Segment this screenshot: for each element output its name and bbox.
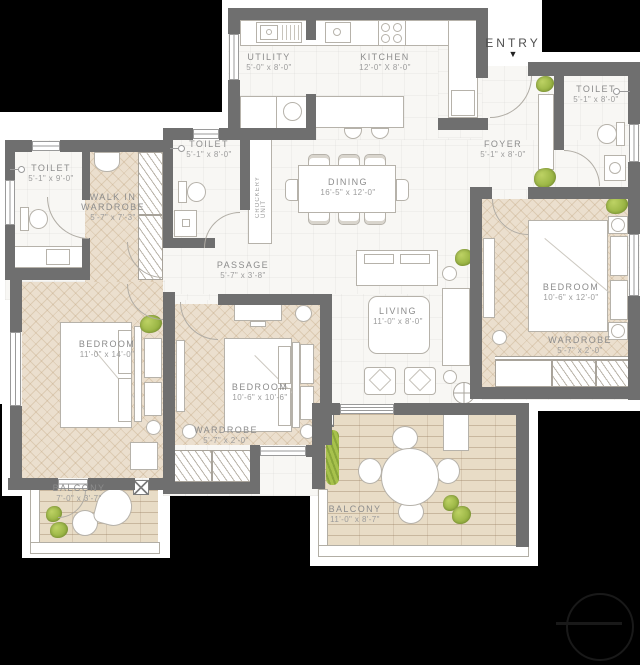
watermark-logo	[566, 593, 634, 661]
living-label: LIVING 11'-0" x 8'-0"	[373, 306, 423, 326]
wc-tank	[616, 122, 625, 146]
bedroom-right-label: BEDROOM 10'-6" x 12'-0"	[543, 282, 599, 302]
wardrobe-middle-label: WARDROBE 5'-7" x 2'-0"	[194, 425, 258, 445]
balcony-railing	[318, 489, 328, 547]
wall	[306, 20, 316, 40]
burner	[393, 23, 402, 32]
wall-light-icon	[10, 169, 18, 170]
side-table	[442, 266, 457, 281]
bedroom-left-label: BEDROOM 11'-0" x 14'-0"	[79, 339, 135, 359]
wall	[470, 187, 482, 399]
entry-label: ENTRY ▼	[485, 36, 540, 59]
study-desk	[234, 304, 282, 321]
wall	[312, 403, 340, 415]
wardrobe-hatch	[212, 450, 252, 482]
sink-drain	[333, 28, 341, 36]
floor-plan: ENTRY ▼ UTILITY 5'-0" x 8'-0" KITCHEN 12…	[0, 0, 640, 665]
desk-drawer	[250, 321, 266, 327]
ac-unit	[133, 480, 149, 495]
wall	[228, 8, 240, 34]
wash-basin	[46, 249, 70, 265]
wall-light-icon	[620, 91, 630, 92]
wall	[554, 76, 564, 150]
bedside-table	[144, 382, 162, 416]
wall	[240, 128, 250, 210]
bed	[528, 220, 608, 332]
wall	[10, 280, 22, 332]
wall	[163, 482, 260, 494]
wall-light-icon	[178, 145, 185, 152]
patio-table	[381, 448, 439, 506]
wall	[5, 268, 90, 280]
fridge	[451, 90, 475, 116]
plan-background	[538, 399, 640, 411]
wall-light-icon	[18, 166, 25, 173]
side-table	[443, 370, 457, 384]
entry-text: ENTRY	[485, 36, 540, 50]
wall	[10, 406, 22, 478]
dining-chair	[285, 179, 298, 201]
wall-light-icon	[170, 148, 178, 149]
wall	[628, 296, 640, 400]
bedside-table	[144, 338, 162, 378]
wall	[228, 8, 482, 20]
mirror-panel	[176, 340, 185, 412]
bedside-lamp	[611, 324, 625, 338]
sink-drain	[266, 29, 272, 35]
toilet-left-label: TOILET 5'-1" x 9'-0"	[28, 163, 74, 183]
wall	[82, 238, 90, 268]
dresser	[130, 442, 158, 470]
wall	[8, 478, 58, 490]
wc-bowl	[597, 124, 617, 144]
window	[193, 129, 219, 139]
sliding-door	[340, 404, 394, 414]
wc-tank	[20, 207, 29, 231]
utility-label: UTILITY 5'-0" x 8'-0"	[246, 52, 292, 72]
wall	[516, 411, 529, 547]
balcony-left-label: BALCONY 7'-0" x 3'-7"	[53, 483, 106, 503]
crockery-unit-label: CROCKERY UNIT	[255, 158, 267, 218]
kitchen-label: KITCHEN 12'-0" X 8'-0"	[359, 52, 411, 72]
wall	[5, 152, 15, 180]
dining-chair	[364, 212, 386, 225]
kitchen-island	[312, 96, 404, 128]
pillow	[118, 378, 132, 422]
pillow	[610, 236, 628, 276]
floor-lamp	[492, 330, 507, 345]
wardrobe-right-label: WARDROBE 5'-7" x 2'-0"	[548, 335, 612, 355]
bedroom-middle-label: BEDROOM 10'-6" x 10'-6"	[232, 382, 288, 402]
headboard	[292, 342, 300, 428]
sofa-cushion	[400, 254, 430, 264]
window	[10, 332, 21, 406]
dining-chair	[338, 212, 360, 225]
watermark-line	[556, 622, 622, 625]
wall	[163, 140, 173, 238]
wall	[482, 387, 640, 399]
walk-in-wardrobe-label: WALK IN WARDROBE 5'-7" x 7'-3"	[81, 192, 145, 222]
burner	[393, 34, 402, 43]
pillow	[278, 346, 291, 384]
patio-chair	[436, 458, 460, 484]
tv-unit	[483, 238, 495, 318]
wc-bowl	[187, 182, 206, 202]
window	[629, 234, 639, 296]
window	[32, 141, 60, 151]
wall	[5, 140, 32, 152]
balcony-railing	[30, 542, 160, 554]
wall	[438, 118, 488, 130]
sofa-cushion	[364, 254, 394, 264]
patio-chair	[392, 426, 418, 450]
wall	[219, 128, 310, 140]
burner	[381, 23, 390, 32]
washing-machine-door	[283, 102, 302, 121]
wall	[394, 403, 529, 415]
window	[5, 180, 15, 225]
window	[260, 446, 306, 456]
balcony-bench	[443, 413, 469, 451]
wc-bowl	[29, 209, 48, 229]
wardrobe-hatch	[552, 360, 596, 387]
wall	[476, 68, 488, 78]
floor-lamp	[146, 420, 161, 435]
wall	[628, 76, 640, 124]
balcony-main-label: BALCONY 11'-0" x 8'-7"	[329, 504, 382, 524]
wall	[60, 140, 165, 152]
wardrobe-hatch	[172, 450, 212, 482]
drainboard	[282, 25, 300, 40]
window	[229, 34, 239, 80]
walkin-basin	[94, 152, 120, 172]
dining-chair	[308, 212, 330, 225]
wall	[218, 294, 322, 305]
passage-label: PASSAGE 5'-7" x 3'-8"	[217, 260, 269, 280]
window	[629, 124, 639, 162]
bedside-table	[300, 344, 314, 384]
console-table	[442, 288, 470, 366]
basin-bowl	[609, 162, 621, 174]
wall	[312, 403, 325, 489]
toilet-middle-label: TOILET 5'-1" x 8'-0"	[186, 139, 232, 159]
wall	[528, 62, 640, 76]
desk-chair	[295, 305, 312, 322]
toilet-top-right-label: TOILET 5'-1" x 8'-0"	[573, 84, 619, 104]
foyer-label: FOYER 5'-1" x 8'-0"	[480, 139, 526, 159]
headboard	[134, 326, 142, 422]
patio-chair	[358, 458, 382, 484]
pillow	[610, 280, 628, 320]
wall	[528, 187, 640, 199]
wc-tank	[178, 181, 187, 203]
entry-arrow-icon: ▼	[485, 50, 540, 59]
bedside-lamp	[611, 218, 625, 232]
dining-chair	[396, 179, 409, 201]
foyer-console	[538, 94, 554, 170]
wardrobe-panel	[495, 360, 552, 387]
burner	[381, 34, 390, 43]
shower-drain	[182, 219, 190, 227]
wall	[163, 292, 175, 494]
balcony-railing	[318, 545, 529, 557]
dining-label: DINING 16'-5" x 12'-0"	[320, 177, 375, 197]
